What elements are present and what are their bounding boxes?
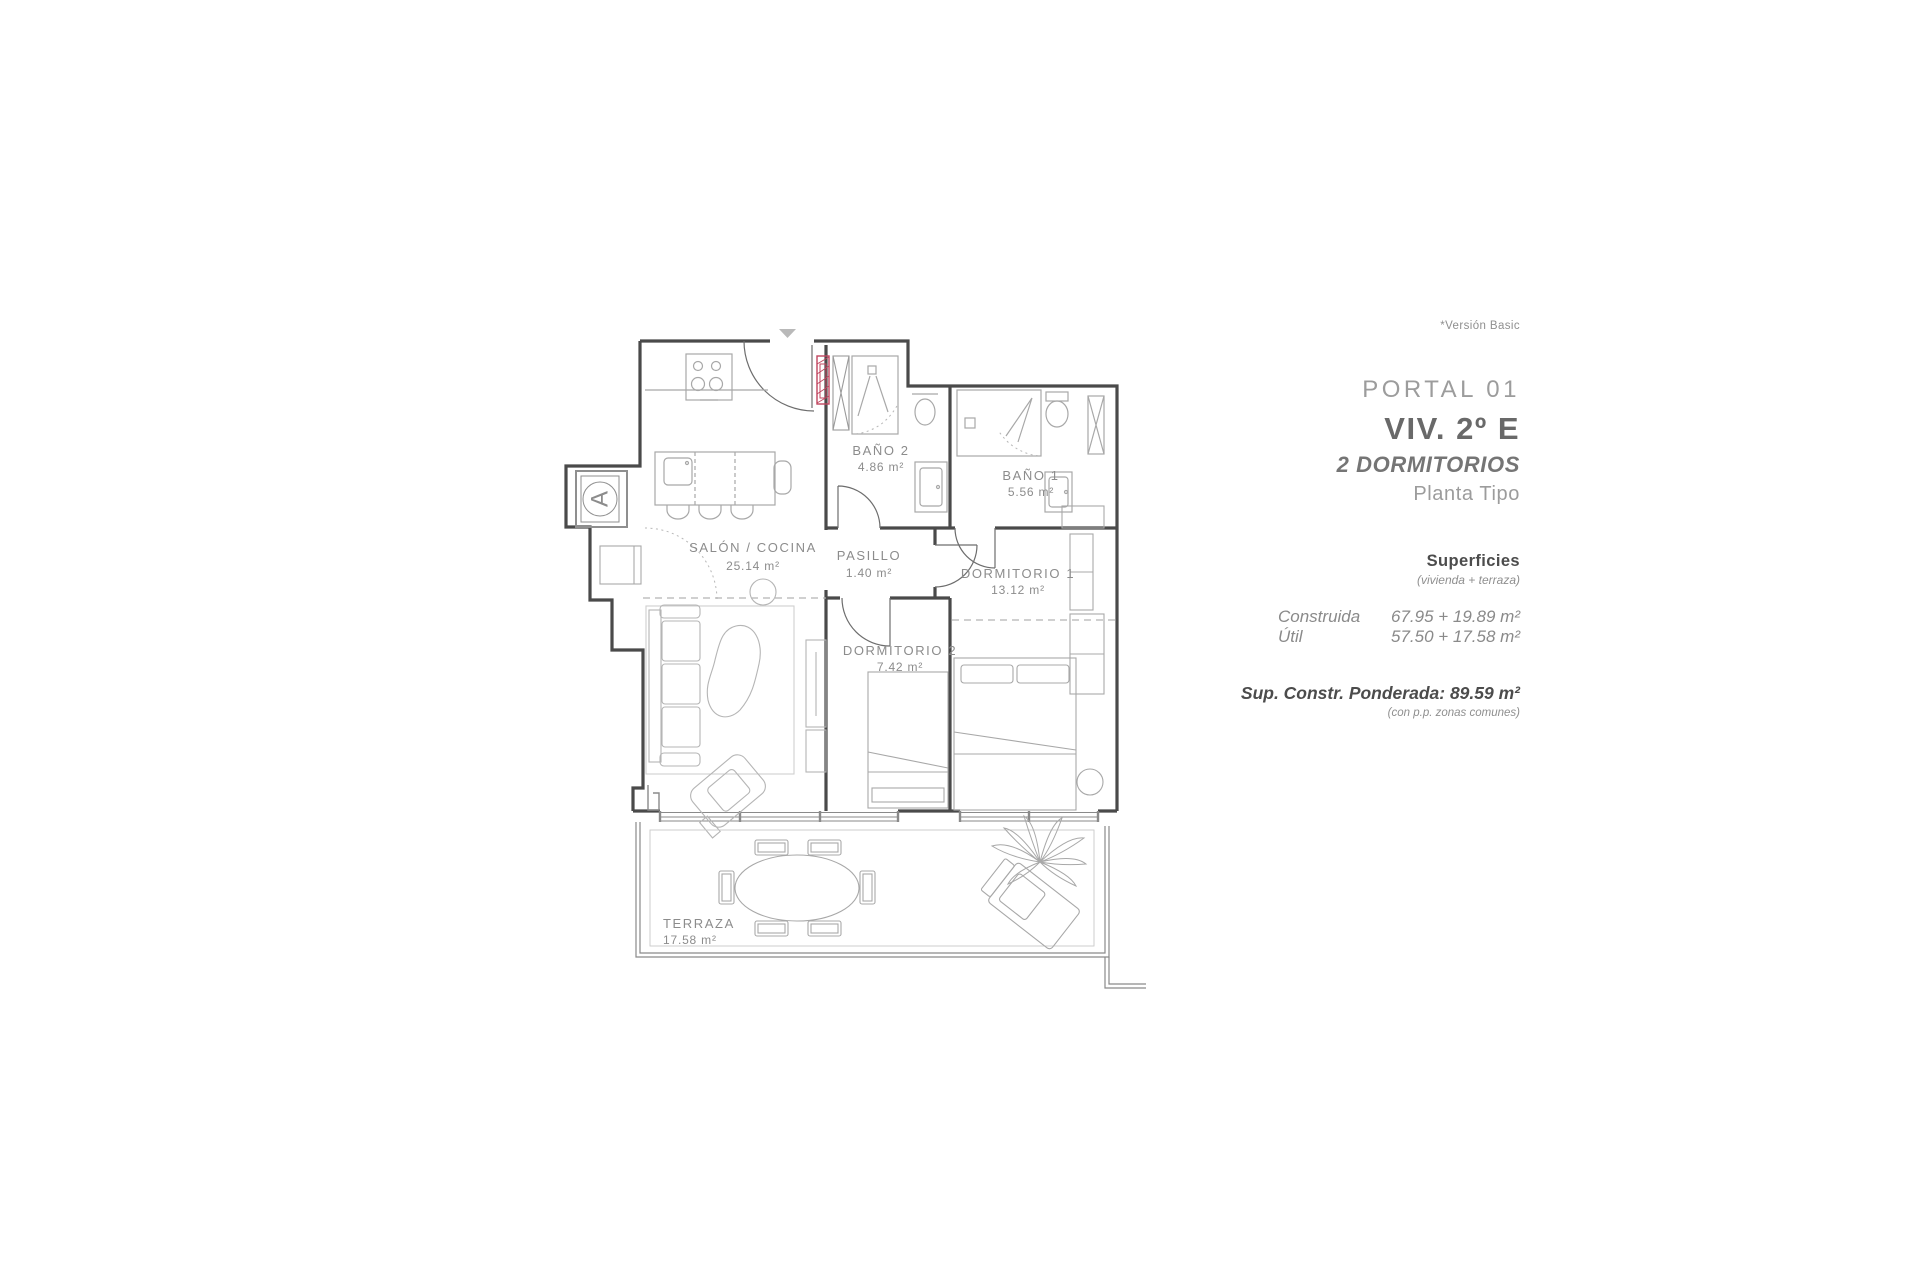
kitchen-counter-stove	[645, 354, 768, 400]
surface-label: Construida	[1278, 607, 1360, 627]
portal-title: PORTAL 01	[1160, 376, 1520, 404]
floor-plan-drawing: A	[0, 0, 1920, 1280]
terrace-lounge-chair	[978, 854, 1081, 950]
weighted-surface: Sup. Constr. Ponderada: 89.59 m²	[1160, 683, 1520, 704]
bedroom2-bed	[868, 672, 948, 808]
version-note: *Versión Basic	[1160, 320, 1520, 332]
area-dorm1: 13.12 m²	[991, 583, 1045, 597]
label-dorm2: DORMITORIO 2	[843, 643, 957, 658]
info-panel: *Versión Basic PORTAL 01 VIV. 2º E 2 DOR…	[1160, 320, 1520, 719]
surface-row-construida: Construida 67.95 + 19.89 m²	[1278, 607, 1520, 627]
area-dorm2: 7.42 m²	[877, 660, 923, 674]
wall-detail-hook	[648, 785, 659, 810]
living-room-furniture	[646, 579, 826, 838]
kitchen-island	[655, 452, 791, 519]
terrace-railing	[636, 822, 1146, 988]
floor-plan-page: A	[0, 0, 1920, 1280]
window-band	[660, 811, 1098, 822]
surface-value: 67.95 + 19.89 m²	[1391, 607, 1520, 627]
surface-value: 57.50 + 17.58 m²	[1391, 627, 1520, 647]
area-salon: 25.14 m²	[726, 559, 780, 573]
surfaces-subtitle: (vivienda + terraza)	[1160, 573, 1520, 587]
bath2-fixtures	[852, 356, 947, 512]
area-terraza: 17.58 m²	[663, 933, 717, 947]
terrace-plant	[992, 816, 1086, 886]
zone-dashed-lines	[643, 598, 1115, 620]
entry-closet	[833, 356, 849, 430]
elevator-label: A	[587, 491, 614, 507]
desk	[600, 546, 641, 584]
entrance-arrow-icon	[779, 329, 796, 338]
unit-type: 2 DORMITORIOS	[1160, 452, 1520, 478]
surfaces-title: Superficies	[1160, 552, 1520, 571]
terrace-table-set	[719, 840, 875, 936]
label-pasillo: PASILLO	[837, 548, 901, 563]
label-dorm1: DORMITORIO 1	[961, 566, 1075, 581]
label-bano1: BAÑO 1	[1002, 468, 1059, 483]
weighted-note: (con p.p. zonas comunes)	[1160, 707, 1520, 719]
label-salon: SALÓN / COCINA	[689, 540, 817, 555]
label-bano2: BAÑO 2	[852, 443, 909, 458]
area-bano1: 5.56 m²	[1008, 485, 1054, 499]
surface-label: Útil	[1278, 627, 1303, 647]
unit-title: VIV. 2º E	[1160, 411, 1520, 447]
floor-type: Planta Tipo	[1160, 483, 1520, 506]
label-terraza: TERRAZA	[663, 916, 735, 931]
area-pasillo: 1.40 m²	[846, 566, 892, 580]
area-bano2: 4.86 m²	[858, 460, 904, 474]
surface-row-util: Útil 57.50 + 17.58 m²	[1278, 627, 1520, 647]
